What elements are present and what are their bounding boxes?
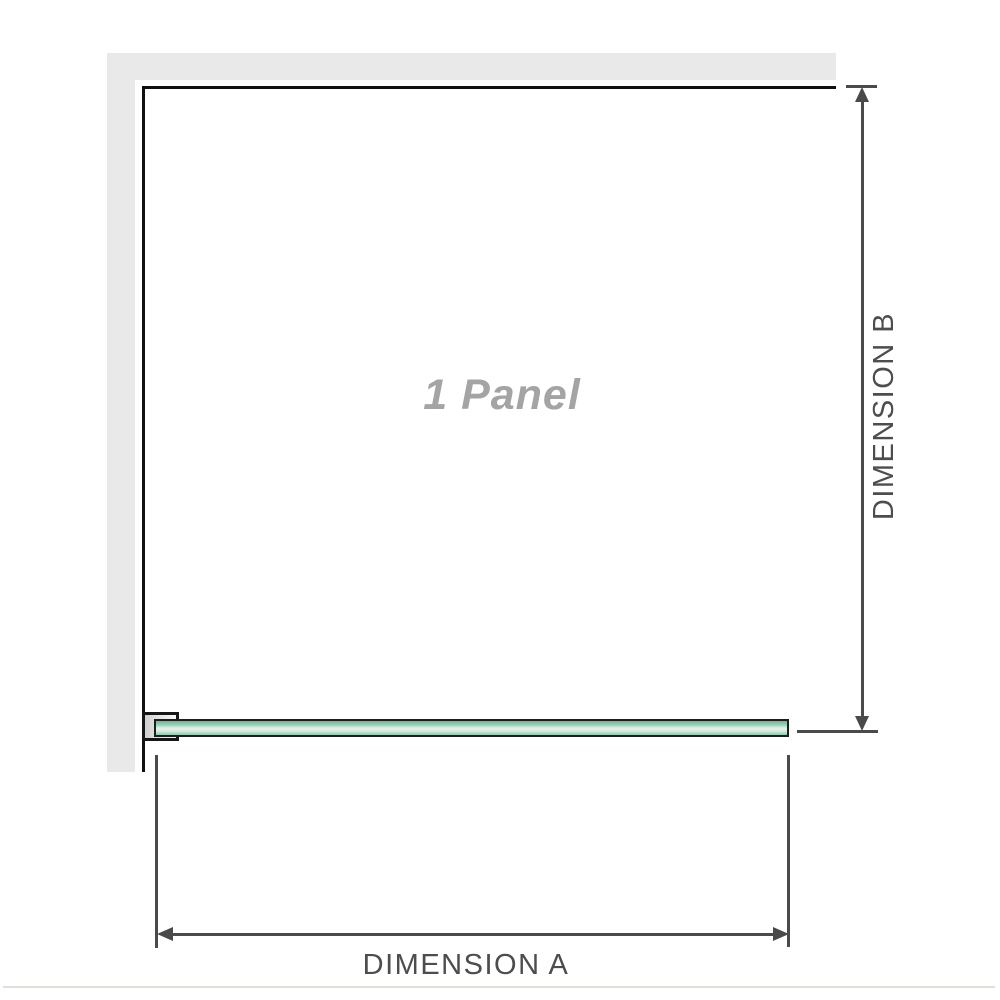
bottom-separator-line — [3, 986, 995, 988]
arrowhead-right-icon — [773, 927, 789, 941]
dimension-a-label: DIMENSION A — [316, 950, 616, 980]
dimension-a-extension-line-right — [787, 755, 790, 947]
glass-panel — [154, 719, 789, 737]
panel-dimension-diagram: DIMENSION A DIMENSION B 1 Panel — [0, 0, 1000, 1000]
top-wall — [107, 53, 836, 80]
arrowhead-down-icon — [855, 716, 869, 731]
dimension-a-line — [170, 933, 776, 936]
arrowhead-left-icon — [157, 927, 173, 941]
left-wall-inner-edge — [142, 86, 145, 772]
top-wall-inner-edge — [142, 86, 836, 89]
left-wall — [107, 53, 135, 772]
dimension-b-line — [861, 99, 864, 719]
dimension-b-label: DIMENSION B — [869, 266, 899, 566]
panel-count-label: 1 Panel — [352, 372, 652, 419]
dimension-a-extension-line-left — [155, 755, 158, 948]
arrowhead-up-icon — [855, 87, 869, 102]
